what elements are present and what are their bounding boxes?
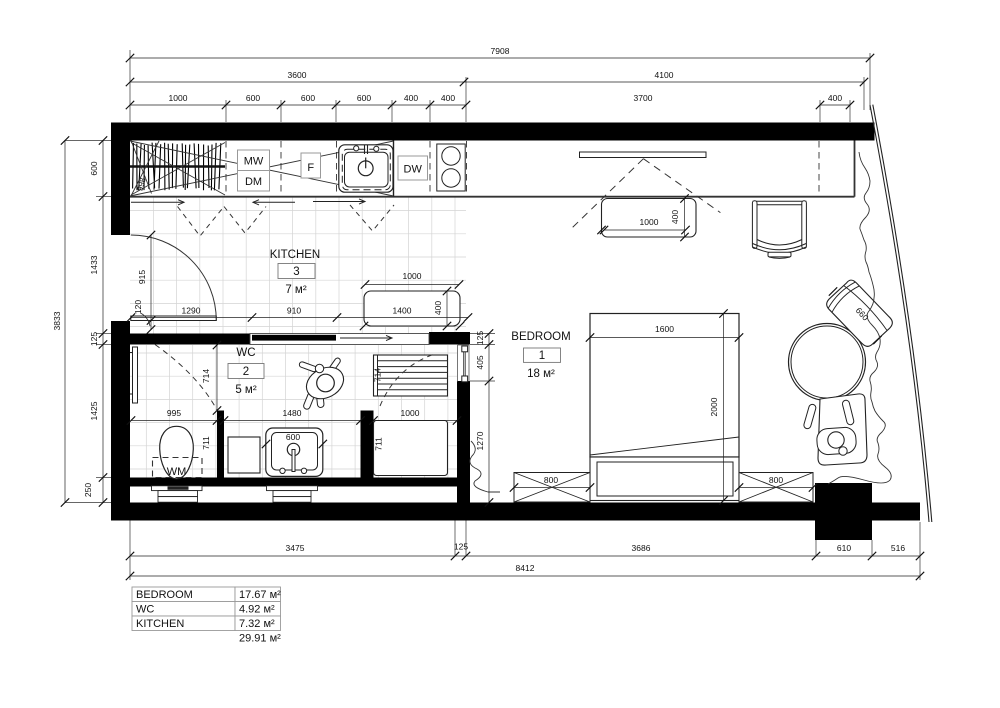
svg-text:F: F xyxy=(307,162,314,174)
svg-text:5 м²: 5 м² xyxy=(235,384,256,396)
svg-text:BEDROOM: BEDROOM xyxy=(136,589,193,601)
svg-text:610: 610 xyxy=(837,543,851,553)
svg-text:1433: 1433 xyxy=(89,255,99,274)
svg-text:3: 3 xyxy=(293,266,299,278)
svg-text:WC: WC xyxy=(136,604,154,616)
svg-text:400: 400 xyxy=(404,93,418,103)
svg-text:1000: 1000 xyxy=(169,93,188,103)
svg-text:7.32 м²: 7.32 м² xyxy=(239,618,275,630)
svg-text:400: 400 xyxy=(828,93,842,103)
svg-text:600: 600 xyxy=(286,432,300,442)
svg-text:17.67 м²: 17.67 м² xyxy=(239,589,281,601)
svg-text:3600: 3600 xyxy=(288,70,307,80)
svg-text:3833: 3833 xyxy=(52,311,62,330)
svg-text:600: 600 xyxy=(301,93,315,103)
svg-text:2: 2 xyxy=(243,366,249,378)
svg-text:1: 1 xyxy=(539,350,545,362)
svg-text:MW: MW xyxy=(244,156,264,168)
svg-text:7 м²: 7 м² xyxy=(285,284,306,296)
svg-text:DM: DM xyxy=(245,176,262,188)
svg-text:1000: 1000 xyxy=(403,271,422,281)
svg-text:29.91 м²: 29.91 м² xyxy=(239,633,281,645)
svg-text:1290: 1290 xyxy=(182,306,201,316)
svg-text:400: 400 xyxy=(670,210,680,224)
svg-text:BEDROOM: BEDROOM xyxy=(511,331,570,343)
svg-text:3686: 3686 xyxy=(632,543,651,553)
svg-text:995: 995 xyxy=(167,408,181,418)
svg-text:600: 600 xyxy=(246,93,260,103)
svg-text:1270: 1270 xyxy=(475,431,485,450)
svg-text:600: 600 xyxy=(89,161,99,175)
svg-text:3475: 3475 xyxy=(286,543,305,553)
svg-text:400: 400 xyxy=(433,301,443,315)
svg-text:915: 915 xyxy=(137,270,147,284)
svg-text:1480: 1480 xyxy=(283,408,302,418)
svg-text:4100: 4100 xyxy=(655,70,674,80)
svg-text:1000: 1000 xyxy=(640,217,659,227)
svg-text:3700: 3700 xyxy=(634,93,653,103)
svg-text:KITCHEN: KITCHEN xyxy=(270,249,320,261)
svg-text:800: 800 xyxy=(544,475,558,485)
svg-text:125: 125 xyxy=(475,331,485,345)
svg-text:WM: WM xyxy=(167,466,187,478)
svg-text:18 м²: 18 м² xyxy=(527,368,555,380)
svg-text:4.92 м²: 4.92 м² xyxy=(239,604,275,616)
svg-text:7908: 7908 xyxy=(491,46,510,56)
svg-text:1000: 1000 xyxy=(401,408,420,418)
svg-text:DW: DW xyxy=(404,164,423,176)
svg-text:250: 250 xyxy=(83,483,93,497)
svg-text:2000: 2000 xyxy=(709,397,719,416)
svg-text:400: 400 xyxy=(441,93,455,103)
svg-text:711: 711 xyxy=(201,436,211,450)
svg-text:1425: 1425 xyxy=(89,401,99,420)
svg-text:800: 800 xyxy=(769,475,783,485)
svg-text:516: 516 xyxy=(891,543,905,553)
svg-text:8412: 8412 xyxy=(516,563,535,573)
svg-text:910: 910 xyxy=(287,306,301,316)
svg-text:1600: 1600 xyxy=(655,324,674,334)
svg-text:125: 125 xyxy=(89,332,99,346)
svg-text:711: 711 xyxy=(374,437,384,451)
svg-text:WC: WC xyxy=(236,347,255,359)
svg-text:405: 405 xyxy=(475,355,485,369)
svg-text:KITCHEN: KITCHEN xyxy=(136,618,184,630)
svg-text:714: 714 xyxy=(373,368,383,382)
svg-text:1400: 1400 xyxy=(393,306,412,316)
svg-text:120: 120 xyxy=(133,300,143,314)
svg-text:125: 125 xyxy=(454,542,468,552)
svg-text:600: 600 xyxy=(357,93,371,103)
svg-text:714: 714 xyxy=(201,369,211,383)
